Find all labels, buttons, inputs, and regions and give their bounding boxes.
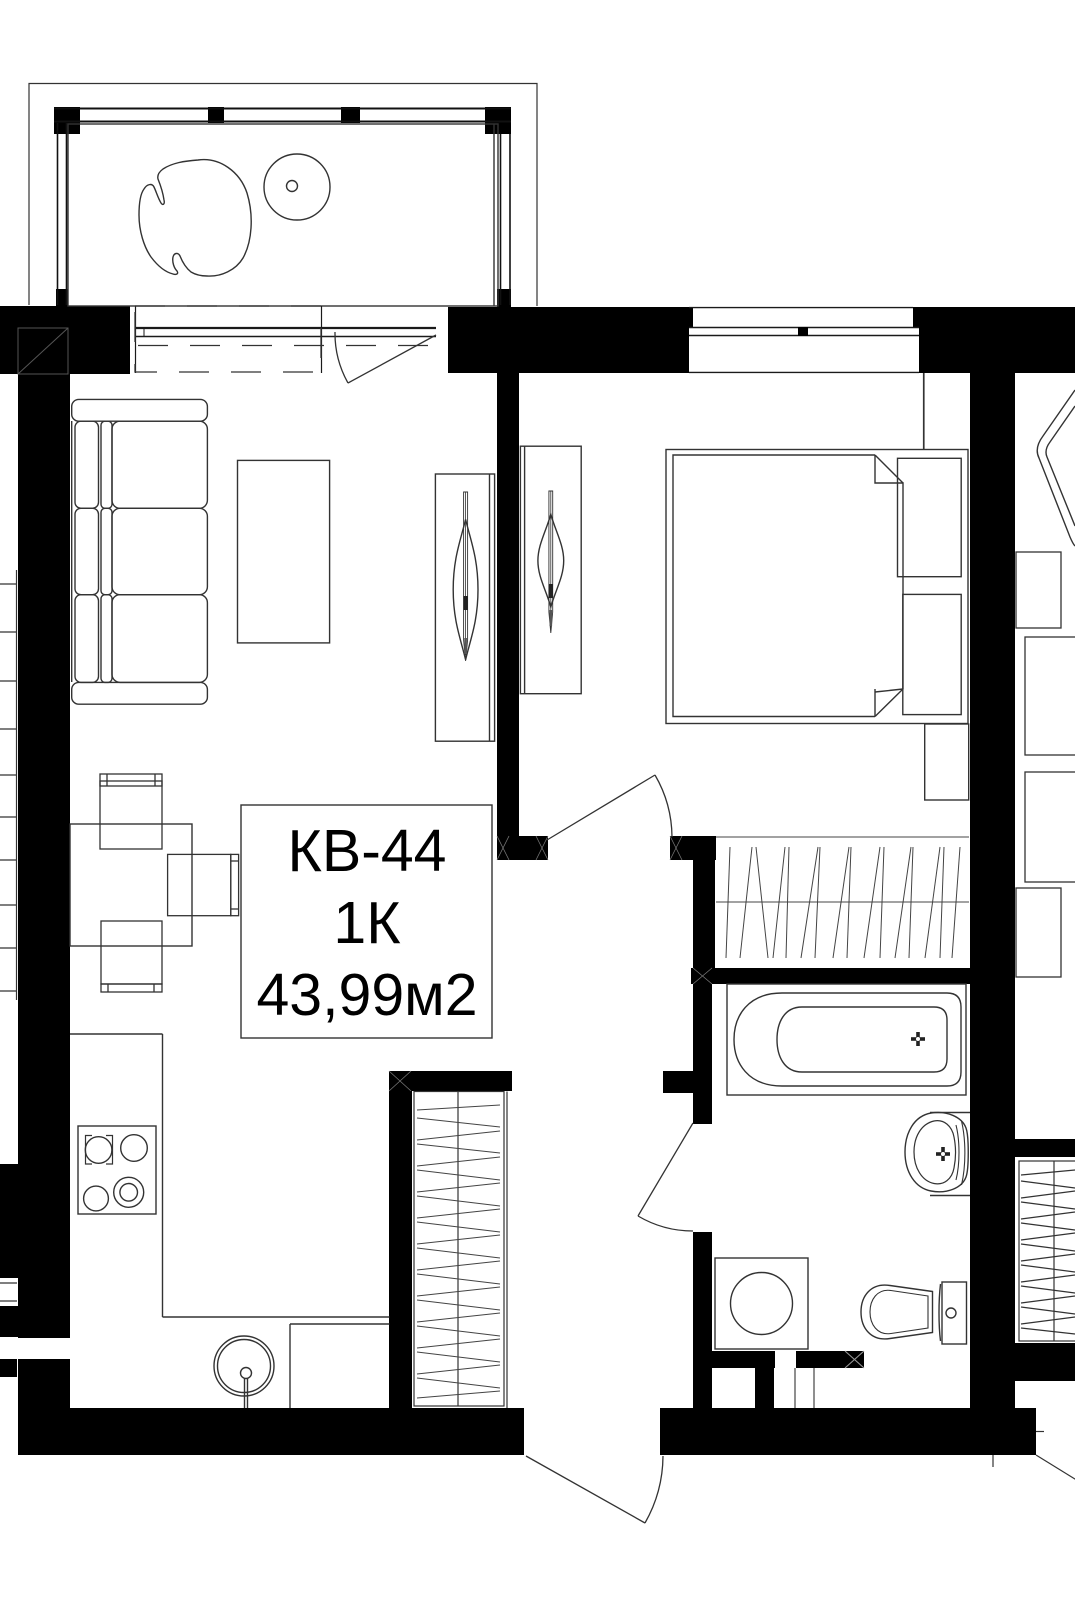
svg-text:КВ-44: КВ-44 xyxy=(288,818,447,884)
svg-text:1К: 1К xyxy=(333,890,401,956)
svg-text:43,99м2: 43,99м2 xyxy=(256,962,477,1028)
